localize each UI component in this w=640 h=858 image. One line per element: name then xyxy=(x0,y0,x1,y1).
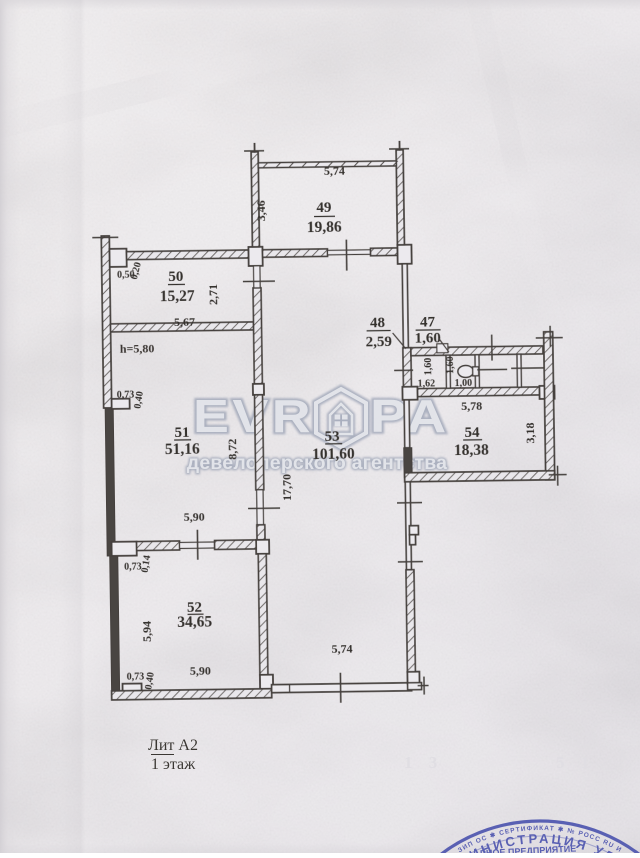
svg-text:5,74: 5,74 xyxy=(324,164,345,178)
svg-text:5,94: 5,94 xyxy=(140,621,154,642)
svg-text:17,70: 17,70 xyxy=(280,474,294,501)
svg-text:h=5,80: h=5,80 xyxy=(120,341,155,355)
svg-text:1,60: 1,60 xyxy=(414,330,440,346)
svg-text:1,60: 1,60 xyxy=(445,356,456,374)
svg-text:1 этаж: 1 этаж xyxy=(151,756,196,773)
svg-text:51: 51 xyxy=(174,425,189,441)
svg-text:1,62: 1,62 xyxy=(418,378,436,389)
svg-text:0,73: 0,73 xyxy=(127,671,145,682)
svg-text:50: 50 xyxy=(168,269,183,285)
svg-text:53: 53 xyxy=(324,429,339,445)
svg-text:3,46: 3,46 xyxy=(254,200,268,221)
svg-text:48: 48 xyxy=(370,315,385,331)
svg-text:51,16: 51,16 xyxy=(165,441,200,458)
svg-text:1 3: 1 3 xyxy=(404,753,443,772)
svg-text:49: 49 xyxy=(316,200,331,216)
svg-text:5,67: 5,67 xyxy=(174,315,195,329)
svg-text:5,90: 5,90 xyxy=(184,510,205,524)
svg-text:19,86: 19,86 xyxy=(307,219,342,236)
svg-text:2,71: 2,71 xyxy=(206,284,220,305)
svg-text:5,90: 5,90 xyxy=(190,664,211,678)
svg-text:15,27: 15,27 xyxy=(160,288,195,305)
svg-text:1,60: 1,60 xyxy=(423,358,434,376)
svg-text:Лит А2: Лит А2 xyxy=(148,737,198,754)
svg-text:8,72: 8,72 xyxy=(225,439,239,460)
svg-text:0,73: 0,73 xyxy=(117,390,135,401)
svg-text:5,78: 5,78 xyxy=(461,399,482,413)
svg-text:EVR: EVR xyxy=(193,391,314,442)
svg-text:18,38: 18,38 xyxy=(454,442,489,459)
svg-text:3,18: 3,18 xyxy=(523,422,537,443)
svg-text:34,65: 34,65 xyxy=(177,614,212,631)
svg-text:47: 47 xyxy=(420,314,436,330)
svg-text:5,74: 5,74 xyxy=(331,642,352,656)
svg-text:5 1: 5 1 xyxy=(556,753,595,772)
svg-text:2,59: 2,59 xyxy=(366,334,392,350)
svg-text:54: 54 xyxy=(464,425,480,441)
svg-text:101,60: 101,60 xyxy=(312,446,355,464)
svg-text:1,00: 1,00 xyxy=(455,378,473,389)
